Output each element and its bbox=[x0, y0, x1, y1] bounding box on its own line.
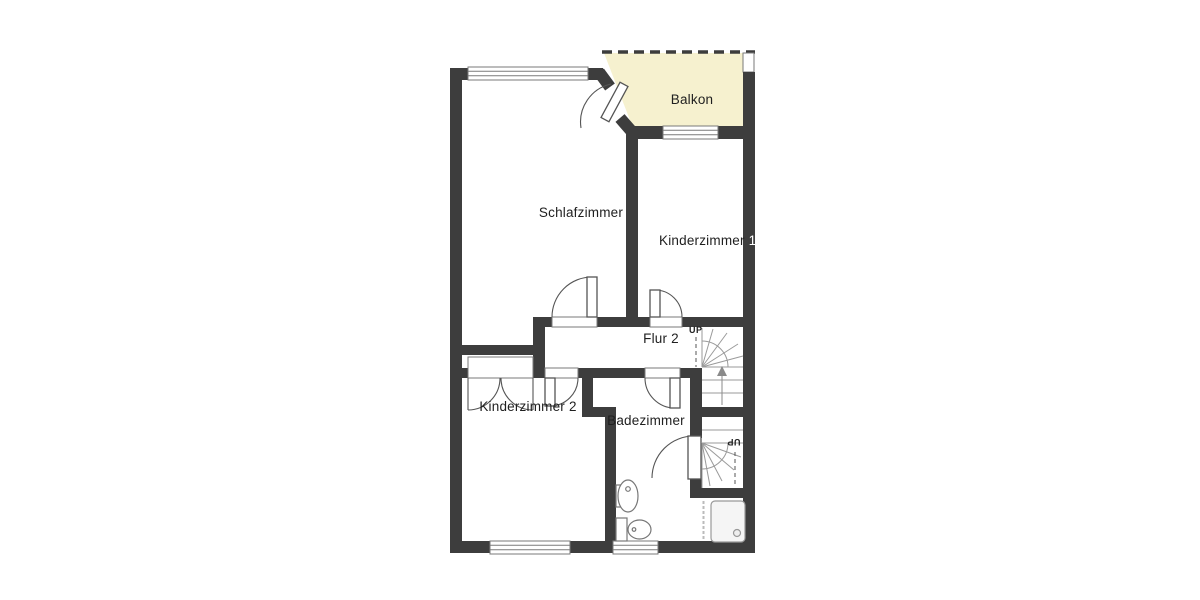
floor-plan-drawing bbox=[0, 0, 1200, 600]
wall-outer-left bbox=[450, 68, 462, 553]
schlafzimmer-door-icon bbox=[552, 277, 597, 317]
room-label-kinderzimmer1: Kinderzimmer1 bbox=[659, 233, 756, 248]
stair-up-label-rotated: UP bbox=[727, 437, 741, 447]
wall-schlaf-kinder1 bbox=[626, 130, 638, 324]
threshold-schlafzimmer bbox=[552, 317, 597, 327]
room-label-flur2: Flur 2 bbox=[643, 331, 679, 346]
room-label-badezimmer: Badezimmer bbox=[607, 413, 685, 428]
toilet-icon bbox=[616, 518, 651, 541]
room-label-balkon: Balkon bbox=[671, 92, 713, 107]
threshold-kinderzimmer2 bbox=[545, 368, 578, 378]
room-label-kinderzimmer2: Kinderzimmer 2 bbox=[479, 399, 576, 414]
balcony-railing-end bbox=[743, 53, 754, 72]
wall-bad-left-lower bbox=[605, 413, 616, 542]
wall-bad-left-upper bbox=[582, 368, 593, 413]
wall-schlaf-kinder2 bbox=[450, 345, 545, 355]
sink-icon bbox=[616, 480, 638, 512]
stair-landing-door-icon bbox=[652, 436, 701, 479]
wall-outer-right bbox=[743, 72, 755, 553]
wall-stair-left-upper bbox=[690, 368, 702, 438]
room-label-schlafzimmer: Schlafzimmer bbox=[539, 205, 623, 220]
threshold-badezimmer bbox=[645, 368, 680, 378]
window-icon bbox=[490, 541, 570, 554]
window-icon bbox=[663, 126, 718, 139]
wall-stair-divider bbox=[690, 407, 755, 417]
wall-flur-bottom bbox=[450, 368, 468, 378]
room-label-kinderzimmer1-text: Kinderzimmer bbox=[659, 233, 745, 248]
window-icon bbox=[468, 67, 588, 80]
threshold-kinderzimmer1 bbox=[650, 317, 682, 327]
shower-icon bbox=[704, 501, 746, 542]
room-label-kinderzimmer1-number: 1 bbox=[749, 233, 757, 248]
wall-flur-top bbox=[597, 317, 650, 327]
wall-stair-bottom bbox=[690, 488, 755, 498]
badezimmer-door-icon bbox=[645, 378, 680, 408]
kinderzimmer1-door-icon bbox=[650, 290, 682, 317]
stair-upper bbox=[696, 328, 743, 405]
window-icon bbox=[613, 541, 658, 554]
closet-front bbox=[468, 357, 533, 378]
stair-up-label: UP bbox=[689, 325, 703, 335]
floor-plan: Balkon Schlafzimmer Kinderzimmer1 Flur 2… bbox=[0, 0, 1200, 600]
